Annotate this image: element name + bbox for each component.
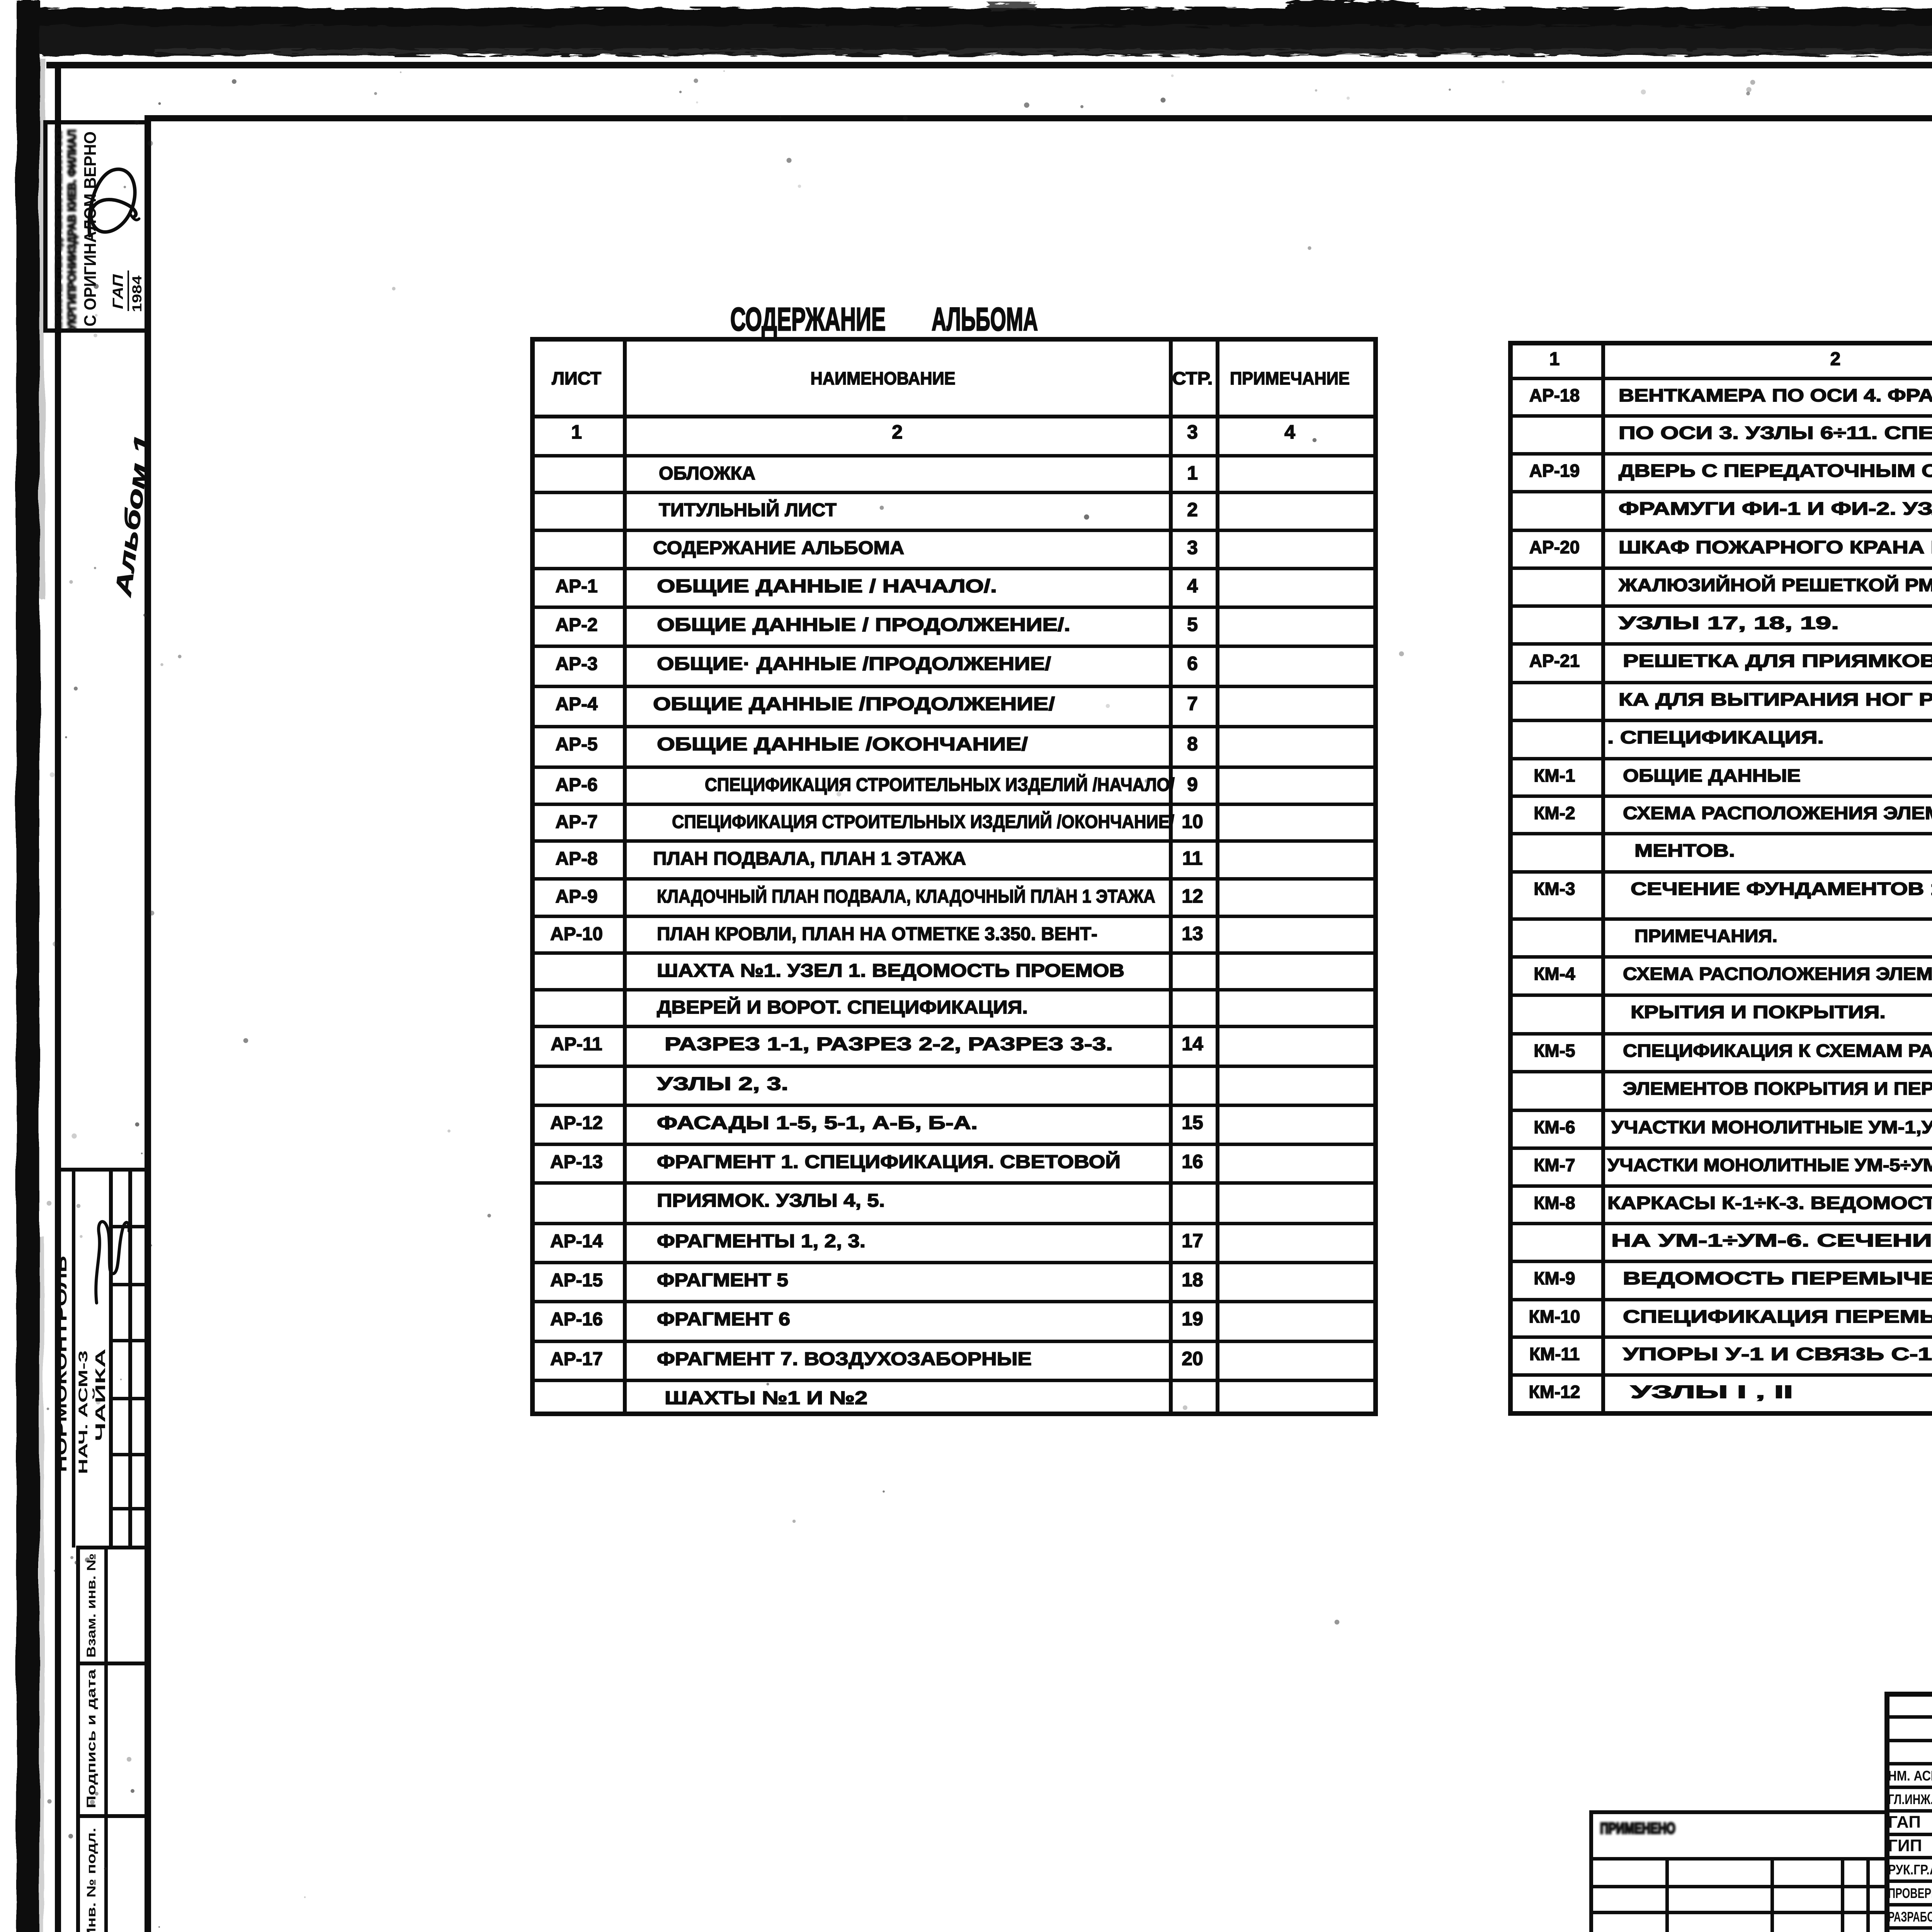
svg-text:УЗЛЫ I , II: УЗЛЫ I , II: [1631, 1382, 1793, 1402]
svg-text:КМ-1: КМ-1: [1534, 765, 1575, 786]
svg-text:Взам. инв. №: Взам. инв. №: [84, 1553, 98, 1658]
svg-text:АР-21: АР-21: [1529, 651, 1580, 671]
svg-text:ДВЕРЬ С ПЕРЕДАТОЧНЫМ ОКНОМ ДИ: ДВЕРЬ С ПЕРЕДАТОЧНЫМ ОКНОМ ДИ-1.: [1619, 461, 1932, 481]
svg-text:СОДЕРЖАНИЕ: СОДЕРЖАНИЕ: [730, 301, 886, 337]
svg-text:ОБЩИЕ ДАННЫЕ /ОКОНЧАНИЕ/: ОБЩИЕ ДАННЫЕ /ОКОНЧАНИЕ/: [657, 734, 1028, 755]
svg-text:КМ-5: КМ-5: [1534, 1041, 1575, 1061]
svg-text:3: 3: [1187, 421, 1198, 443]
svg-text:КМ-8: КМ-8: [1534, 1193, 1575, 1213]
svg-text:Инв. № подл.: Инв. № подл.: [84, 1828, 98, 1932]
svg-text:ОБЩИЕ ДАННЫЕ / ПРОДОЛЖЕНИЕ/: ОБЩИЕ ДАННЫЕ / ПРОДОЛЖЕНИЕ/.: [657, 615, 1070, 635]
svg-text:АР-6: АР-6: [555, 775, 597, 795]
svg-text:ОБЩИЕ ДАННЫЕ /ПРОДОЛЖЕНИЕ/: ОБЩИЕ ДАННЫЕ /ПРОДОЛЖЕНИЕ/: [653, 694, 1055, 714]
svg-text:АР-8: АР-8: [555, 849, 597, 869]
svg-text:АР-4: АР-4: [555, 694, 598, 714]
svg-text:КРЫТИЯ И ПОКРЫТИЯ.: КРЫТИЯ И ПОКРЫТИЯ.: [1631, 1002, 1886, 1022]
svg-text:18: 18: [1182, 1269, 1203, 1291]
svg-text:ГАП: ГАП: [1888, 1813, 1921, 1832]
svg-text:СЕЧЕНИЕ ФУНДАМЕНТОВ 1-1÷17-17.: СЕЧЕНИЕ ФУНДАМЕНТОВ 1-1÷17-17. ОБЩИЕ: [1631, 879, 1932, 899]
svg-text:ВЕНТКАМЕРА ПО ОСИ 4. ФРАГМЕНТ: ВЕНТКАМЕРА ПО ОСИ 4. ФРАГМЕНТ ПОДВАЛА: [1619, 385, 1932, 405]
svg-text:СПЕЦИФИКАЦИЯ СТРОИТЕЛЬНЫХ ИЗДЕ: СПЕЦИФИКАЦИЯ СТРОИТЕЛЬНЫХ ИЗДЕЛИЙ /ОКОНЧ…: [672, 811, 1174, 832]
svg-text:ПРИМЕЧАНИЯ.: ПРИМЕЧАНИЯ.: [1634, 926, 1777, 946]
svg-text:АР-1: АР-1: [555, 576, 597, 597]
svg-text:АР-7: АР-7: [555, 812, 597, 832]
svg-text:УПОРЫ У-1 И СВЯЗЬ С-1: УПОРЫ У-1 И СВЯЗЬ С-1: [1623, 1344, 1932, 1364]
svg-text:УЗЛЫ 2, 3.: УЗЛЫ 2, 3.: [657, 1074, 788, 1094]
svg-text:УЧАСТКИ МОНОЛИТНЫЕ УМ-1,УМ-2.: УЧАСТКИ МОНОЛИТНЫЕ УМ-1,УМ-2. СЕЧЕНИЕa-a…: [1611, 1117, 1932, 1137]
svg-text:СОДЕРЖАНИЕ АЛЬБОМА: СОДЕРЖАНИЕ АЛЬБОМА: [653, 538, 904, 558]
svg-text:ЧАЙКА: ЧАЙКА: [92, 1349, 108, 1441]
svg-text:ПЛАН КРОВЛИ, ПЛАН НА ОТМЕТКЕ 3: ПЛАН КРОВЛИ, ПЛАН НА ОТМЕТКЕ 3.350. ВЕНТ…: [657, 924, 1097, 944]
svg-text:ПРИМЕНЕНО: ПРИМЕНЕНО: [1600, 1820, 1675, 1837]
svg-text:КМ-10: КМ-10: [1529, 1306, 1580, 1327]
svg-text:КА ДЛЯ ВЫТИРАНИЯ НОГ РМИ-2. У: КА ДЛЯ ВЫТИРАНИЯ НОГ РМИ-2. УЗЕЛ 20: [1619, 689, 1932, 709]
svg-text:ДВЕРЕЙ И ВОРОТ. СПЕЦИФИКАЦИЯ.: ДВЕРЕЙ И ВОРОТ. СПЕЦИФИКАЦИЯ.: [657, 997, 1028, 1018]
svg-text:НА УМ-1÷УМ-6. СЕЧЕНИЕ a-a÷2-: НА УМ-1÷УМ-6. СЕЧЕНИЕ a-a÷2-2.: [1611, 1230, 1932, 1250]
svg-text:ПРОВЕРИЛ: ПРОВЕРИЛ: [1888, 1885, 1932, 1901]
svg-text:СПЕЦИФИКАЦИЯ ПЕРЕМЫЧЕК: СПЕЦИФИКАЦИЯ ПЕРЕМЫЧЕК: [1623, 1306, 1932, 1327]
svg-text:КМ-4: КМ-4: [1534, 964, 1575, 984]
svg-text:2: 2: [892, 421, 903, 443]
svg-text:ОБЩИЕ ДАННЫЕ: ОБЩИЕ ДАННЫЕ: [1623, 765, 1801, 786]
svg-text:СХЕМА РАСПОЛОЖЕНИЯ ЭЛЕМЕНТОВ: СХЕМА РАСПОЛОЖЕНИЯ ЭЛЕМЕНТОВ ФУНДА-: [1623, 803, 1932, 823]
svg-text:ПРИЯМОК. УЗЛЫ 4, 5.: ПРИЯМОК. УЗЛЫ 4, 5.: [657, 1190, 885, 1211]
svg-text:АР-15: АР-15: [550, 1270, 603, 1291]
svg-text:. СПЕЦИФИКАЦИЯ.: . СПЕЦИФИКАЦИЯ.: [1607, 727, 1824, 747]
svg-text:ФАСАДЫ 1-5, 5-1, А-Б, Б-А.: ФАСАДЫ 1-5, 5-1, А-Б, Б-А.: [657, 1113, 978, 1133]
svg-text:ПЛАН ПОДВАЛА, ПЛАН 1 ЭТАЖА: ПЛАН ПОДВАЛА, ПЛАН 1 ЭТАЖА: [653, 849, 966, 869]
svg-text:АР-19: АР-19: [1529, 461, 1580, 481]
svg-text:КМ-6: КМ-6: [1534, 1117, 1575, 1137]
svg-text:СПЕЦИФИКАЦИЯ К СХЕМАМ РАСПОЛОЖ: СПЕЦИФИКАЦИЯ К СХЕМАМ РАСПОЛОЖЕНИЯ: [1623, 1041, 1932, 1061]
svg-text:20: 20: [1182, 1348, 1203, 1369]
svg-text:ФРАМУГИ ФИ-1 И ФИ-2. УЗЛЫ. 1: ФРАМУГИ ФИ-1 И ФИ-2. УЗЛЫ. 12÷16: [1619, 498, 1932, 519]
svg-text:10: 10: [1182, 811, 1203, 832]
svg-text:8: 8: [1187, 733, 1198, 755]
svg-text:5: 5: [1187, 614, 1198, 635]
svg-text:11: 11: [1182, 847, 1203, 869]
svg-text:КМ-12: КМ-12: [1529, 1382, 1580, 1402]
svg-text:НАЧ. АСМ-3: НАЧ. АСМ-3: [76, 1350, 90, 1474]
svg-text:ФРАГМЕНТЫ 1, 2, 3.: ФРАГМЕНТЫ 1, 2, 3.: [657, 1231, 866, 1252]
svg-text:15: 15: [1182, 1112, 1203, 1133]
svg-text:КМ-3: КМ-3: [1534, 879, 1575, 899]
svg-text:17: 17: [1182, 1230, 1203, 1252]
svg-text:2: 2: [1187, 499, 1198, 520]
svg-text:ШАХТА №1. УЗЕЛ 1. ВЕДОМОСТЬ: ШАХТА №1. УЗЕЛ 1. ВЕДОМОСТЬ ПРОЕМОВ: [657, 961, 1124, 981]
svg-text:КМ-7: КМ-7: [1534, 1155, 1575, 1175]
svg-text:ПРИМЕЧАНИЕ: ПРИМЕЧАНИЕ: [1230, 368, 1350, 388]
svg-text:НМ. АСМ-3: НМ. АСМ-3: [1888, 1768, 1932, 1784]
svg-text:19: 19: [1182, 1308, 1203, 1330]
svg-text:АР-16: АР-16: [550, 1309, 603, 1330]
svg-text:АР-11: АР-11: [551, 1034, 602, 1054]
svg-text:13: 13: [1182, 923, 1203, 944]
svg-text:ЖАЛЮЗИЙНОЙ РЕШЕТКОЙ РМИ-1.: ЖАЛЮЗИЙНОЙ РЕШЕТКОЙ РМИ-1.: [1618, 575, 1932, 595]
svg-text:1: 1: [1187, 462, 1198, 484]
svg-text:АР-3: АР-3: [555, 654, 597, 674]
svg-text:НАИМЕНОВАНИЕ: НАИМЕНОВАНИЕ: [811, 368, 956, 388]
svg-text:КМ-11: КМ-11: [1529, 1344, 1580, 1364]
svg-text:ОБЛОЖКА: ОБЛОЖКА: [659, 463, 755, 484]
svg-text:4: 4: [1187, 575, 1198, 597]
svg-text:КМ-2: КМ-2: [1534, 803, 1575, 823]
svg-text:1: 1: [1549, 349, 1560, 369]
svg-text:АР-18: АР-18: [1529, 385, 1580, 405]
svg-text:ФРАГМЕНТ 1. СПЕЦИФИКАЦИЯ. СВ: ФРАГМЕНТ 1. СПЕЦИФИКАЦИЯ. СВЕТОВОЙ: [657, 1151, 1121, 1172]
svg-text:СПЕЦИФИКАЦИЯ СТРОИТЕЛЬНЫХ ИЗДЕ: СПЕЦИФИКАЦИЯ СТРОИТЕЛЬНЫХ ИЗДЕЛИЙ /НАЧАЛ…: [705, 774, 1175, 795]
svg-text:РАЗРЕЗ 1-1, РАЗРЕЗ 2-2, РАЗР: РАЗРЕЗ 1-1, РАЗРЕЗ 2-2, РАЗРЕЗ 3-3.: [665, 1034, 1113, 1054]
svg-text:ФРАГМЕНТ 6: ФРАГМЕНТ 6: [657, 1309, 790, 1330]
svg-text:ОБЩИЕ· ДАННЫЕ /ПРОДОЛЖЕНИЕ/: ОБЩИЕ· ДАННЫЕ /ПРОДОЛЖЕНИЕ/: [657, 654, 1051, 674]
svg-text:АР-12: АР-12: [550, 1113, 603, 1133]
svg-text:9: 9: [1187, 774, 1198, 795]
svg-text:3: 3: [1187, 537, 1198, 558]
svg-text:ГЛ.ИНЖ.АСА: ГЛ.ИНЖ.АСА: [1888, 1791, 1932, 1807]
svg-text:АР-2: АР-2: [555, 615, 597, 635]
svg-text:ШАХТЫ №1 И №2: ШАХТЫ №1 И №2: [665, 1388, 867, 1408]
svg-text:АР-10: АР-10: [550, 924, 603, 944]
svg-text:12: 12: [1182, 885, 1203, 907]
svg-text:АР-17: АР-17: [550, 1349, 603, 1369]
svg-text:ФРАГМЕНТ 7. ВОЗДУХОЗАБОРНЫЕ: ФРАГМЕНТ 7. ВОЗДУХОЗАБОРНЫЕ: [657, 1349, 1032, 1369]
svg-text:16: 16: [1182, 1151, 1203, 1172]
svg-text:КАРКАСЫ К-1÷К-3. ВЕДОМОСТЬ РАС: КАРКАСЫ К-1÷К-3. ВЕДОМОСТЬ РАСХОДА СТАЛИ: [1607, 1193, 1932, 1213]
svg-text:АР-14: АР-14: [550, 1231, 603, 1252]
svg-text:1984: 1984: [130, 276, 145, 312]
svg-text:УЧАСТКИ МОНОЛИТНЫЕ УМ-5÷УМ-6.: УЧАСТКИ МОНОЛИТНЫЕ УМ-5÷УМ-6. СПЕЦИФИКАЦ…: [1607, 1155, 1932, 1175]
svg-text:1: 1: [571, 421, 582, 443]
svg-text:РУК.ГР.АРХ.: РУК.ГР.АРХ.: [1888, 1862, 1932, 1878]
svg-text:КЛАДОЧНЫЙ ПЛАН ПОДВАЛА, КЛАДО: КЛАДОЧНЫЙ ПЛАН ПОДВАЛА, КЛАДОЧНЫЙ ПЛАН 1…: [657, 886, 1155, 907]
svg-text:4: 4: [1284, 421, 1295, 443]
svg-text:ФРАГМЕНТ 5: ФРАГМЕНТ 5: [657, 1270, 788, 1291]
svg-text:АР-20: АР-20: [1529, 537, 1580, 557]
svg-text:ЭЛЕМЕНТОВ ПОКРЫТИЯ И ПЕРЕКРЫТИ: ЭЛЕМЕНТОВ ПОКРЫТИЯ И ПЕРЕКРЫТИЯ: [1623, 1078, 1932, 1099]
svg-text:ПО ОСИ 3. УЗЛЫ 6÷11. СПЕЦИФИК: ПО ОСИ 3. УЗЛЫ 6÷11. СПЕЦИФИКАЦИЯ.: [1619, 423, 1932, 443]
svg-text:6: 6: [1187, 653, 1198, 674]
svg-text:МИНИСТЕРСТВО ЗДРАВООХРАНЕНИЯ У: МИНИСТЕРСТВО ЗДРАВООХРАНЕНИЯ УССР: [54, 128, 64, 332]
svg-text:ЛИСТ: ЛИСТ: [552, 368, 601, 388]
svg-text:ГАП: ГАП: [110, 274, 126, 309]
svg-text:14: 14: [1182, 1033, 1203, 1054]
svg-text:СТР.: СТР.: [1172, 368, 1213, 388]
svg-text:УЗЛЫ 17, 18, 19.: УЗЛЫ 17, 18, 19.: [1619, 613, 1839, 633]
svg-text:ОБЩИЕ ДАННЫЕ / НАЧАЛО/.: ОБЩИЕ ДАННЫЕ / НАЧАЛО/.: [657, 576, 997, 597]
svg-text:РАЗРАБОТАЛ: РАЗРАБОТАЛ: [1888, 1909, 1932, 1925]
svg-text:7: 7: [1187, 693, 1198, 714]
svg-text:ГИП: ГИП: [1888, 1836, 1922, 1855]
svg-text:АР-13: АР-13: [550, 1152, 603, 1172]
svg-text:АЛЬБОМА: АЛЬБОМА: [932, 301, 1038, 337]
svg-text:АР-9: АР-9: [555, 886, 597, 907]
svg-text:2: 2: [1830, 349, 1841, 369]
svg-text:АР-5: АР-5: [555, 734, 597, 755]
svg-text:КМ-9: КМ-9: [1534, 1268, 1575, 1288]
svg-text:Подпись и дата: Подпись и дата: [84, 1669, 98, 1808]
svg-text:СХЕМА РАСПОЛОЖЕНИЯ ЭЛЕМЕНТОВ: СХЕМА РАСПОЛОЖЕНИЯ ЭЛЕМЕНТОВ ПЕРЕ-: [1623, 964, 1932, 984]
svg-text:ШКАФ ПОЖАРНОГО КРАНА ПК. ЛЮК: ШКАФ ПОЖАРНОГО КРАНА ПК. ЛЮК С: [1619, 537, 1932, 557]
svg-text:ТИТУЛЬНЫЙ ЛИСТ: ТИТУЛЬНЫЙ ЛИСТ: [659, 499, 837, 520]
svg-text:НОРМОКОНТРОЛЬ: НОРМОКОНТРОЛЬ: [53, 1256, 70, 1472]
svg-text:УКРГИПРОНИИЗДРАВ КИЕВ. ФИЛИАЛ: УКРГИПРОНИИЗДРАВ КИЕВ. ФИЛИАЛ: [66, 129, 78, 330]
svg-text:ВЕДОМОСТЬ ПЕРЕМЫЧЕК.: ВЕДОМОСТЬ ПЕРЕМЫЧЕК.: [1623, 1268, 1932, 1288]
svg-text:РЕШЕТКА ДЛЯ ПРИЯМКОВ РМИ-1. Р: РЕШЕТКА ДЛЯ ПРИЯМКОВ РМИ-1. РЕШЕТ-: [1623, 651, 1932, 671]
svg-text:МЕНТОВ.: МЕНТОВ.: [1634, 840, 1735, 861]
